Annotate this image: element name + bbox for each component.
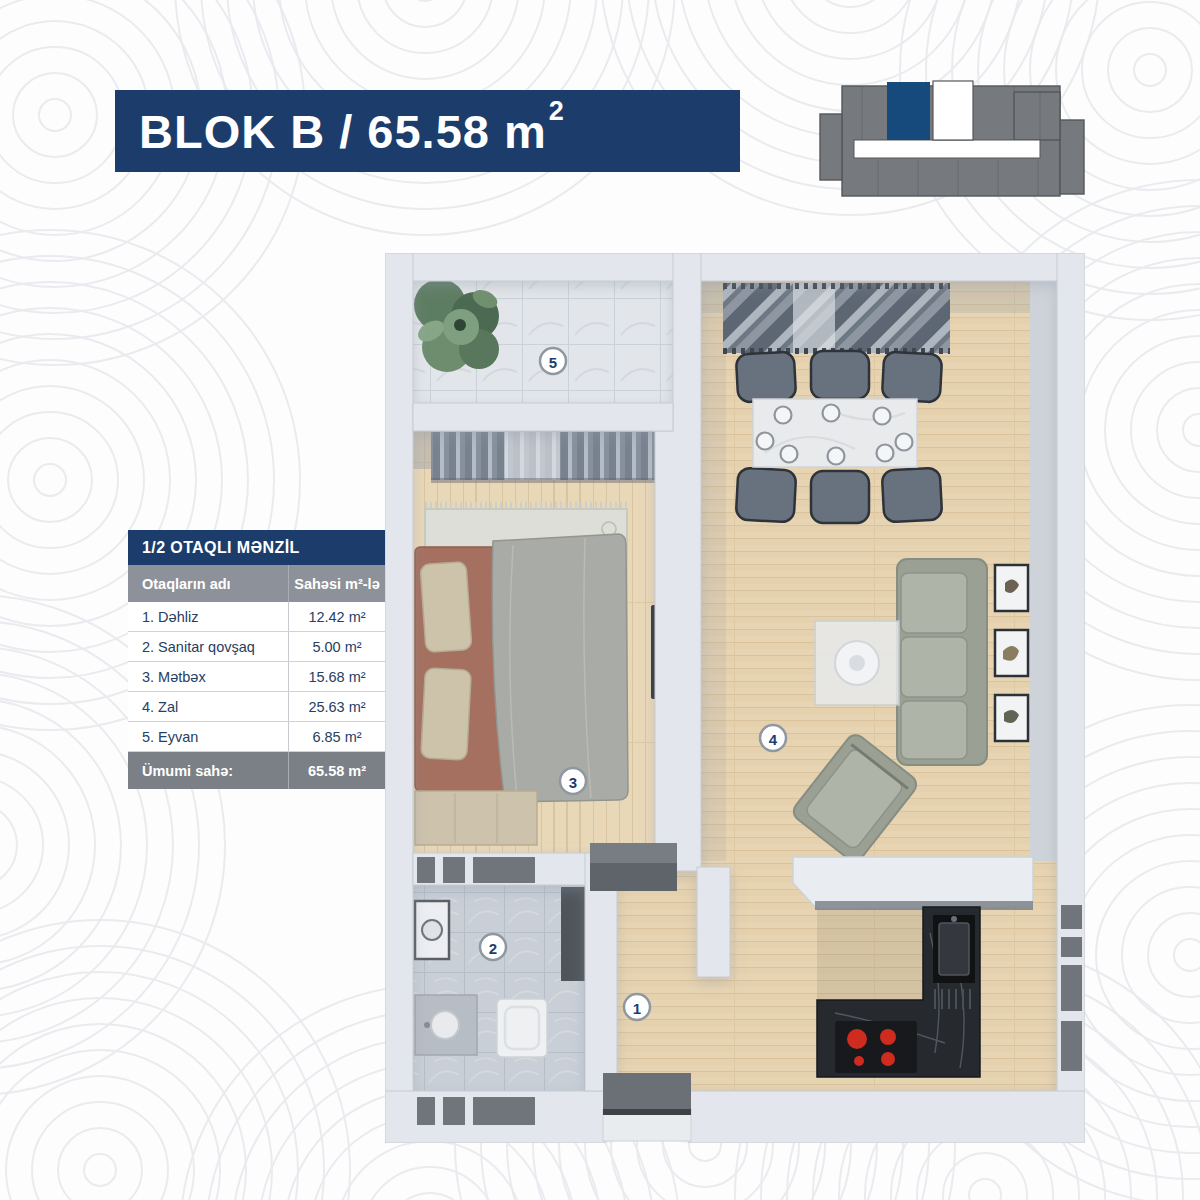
table-header-row: Otaqların adı Sahəsi m²-lə [128,565,385,602]
table-row: 3. Mətbəx 15.68 m² [128,662,385,692]
bg-ripple [0,920,350,1200]
bed-blanket [492,534,628,802]
wall-balcony-bedroom [413,403,673,431]
room-name: 2. Sanitar qovşaq [128,639,288,655]
living-curtain-sheer [793,283,835,353]
building-thumbnail [818,78,1086,218]
room-name: 5. Eyvan [128,729,288,745]
total-label: Ümumi sahə: [128,763,288,779]
room-badge-bedroom: 3 [560,768,586,794]
page: BLOK B / 65.58 m2 1/2 OTAQLI MƏNZİL Otaq… [0,0,1200,1200]
toilet-icon [497,999,547,1057]
table-title: 1/2 OTAQLI MƏNZİL [128,530,385,565]
living-curtain [723,283,950,353]
room-badge-bathroom: 2 [480,934,506,960]
stove-icon [835,1021,917,1073]
bedroom-curtain-sheer [505,432,560,480]
room-area: 15.68 m² [289,669,385,685]
wall-art-frames [995,565,1028,741]
table-row: 5. Eyvan 6.85 m² [128,722,385,752]
bedroom-door-threshold [590,863,677,891]
room-area: 6.85 m² [289,729,385,745]
dresser [415,791,537,845]
adjacent-unit [933,81,973,140]
room-name: 1. Dəhliz [128,609,288,625]
sofa [897,559,987,765]
room-area: 12.42 m² [289,609,385,625]
kitchen-floor-shadow [817,907,923,1003]
bathroom-door [561,887,587,981]
page-title: BLOK B / 65.58 m [139,104,547,159]
entrance-door-edge [603,1109,691,1115]
room-number: 3 [569,774,577,791]
table-row: 1. Dəhliz 12.42 m² [128,602,385,632]
room-number: 5 [549,354,557,371]
highlighted-unit [887,82,930,140]
coffee-table [815,621,899,705]
entrance-door-threshold [603,1073,691,1115]
plant-icon [414,279,500,372]
area-table: 1/2 OTAQLI MƏNZİL Otaqların adı Sahəsi m… [128,530,385,789]
wall-left [385,253,413,1143]
room-name: 3. Mətbəx [128,669,288,685]
column-header-rooms: Otaqların adı [128,576,288,592]
corridor-strip [854,140,1040,158]
curtain-hem [431,478,657,483]
wall-bottom-right [689,1091,1085,1143]
room-number: 4 [769,731,778,748]
page-title-superscript: 2 [549,96,564,127]
column-header-area: Sahəsi m²-lə [289,576,385,592]
washing-machine-icon [415,901,449,959]
table-footer-row: Ümumi sahə: 65.58 m² [128,752,385,789]
table-row: 4. Zal 25.63 m² [128,692,385,722]
bedroom-door-threshold [590,843,677,863]
room-badge-hallway: 1 [624,994,650,1020]
total-value: 65.58 m² [289,763,385,779]
room-number: 2 [489,940,497,957]
floor-plan: 5 3 2 1 4 [385,253,1085,1143]
table-row: 2. Sanitar qovşaq 5.00 m² [128,632,385,662]
room-area: 25.63 m² [289,699,385,715]
living-right-wall-face [1030,281,1057,861]
wall-top [385,253,1085,281]
balcony [414,279,500,372]
living-left-shadow [700,281,726,861]
room-number: 1 [633,1000,641,1017]
sink-vanity-icon [415,995,477,1055]
title-banner: BLOK B / 65.58 m2 [115,90,740,172]
room-name: 4. Zal [128,699,288,715]
room-badge-balcony: 5 [540,348,566,374]
room-area: 5.00 m² [289,639,385,655]
wall-pillar [697,867,730,977]
room-badge-living: 4 [760,725,786,751]
